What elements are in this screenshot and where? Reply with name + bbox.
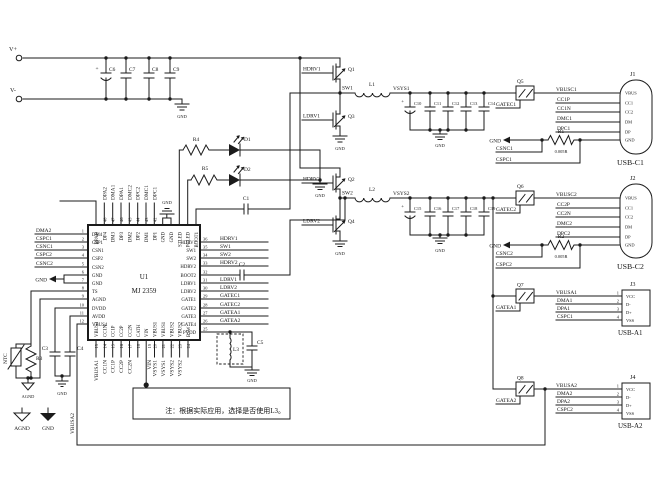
svg-text:GND: GND [625,138,635,143]
svg-text:DPA1: DPA1 [557,306,570,312]
svg-text:C3: C3 [42,346,49,352]
svg-text:DM: DM [625,120,632,125]
svg-text:CSPC2: CSPC2 [496,262,512,268]
svg-text:GATEC2: GATEC2 [220,302,240,308]
mosfet-q7-icon [516,289,534,303]
svg-text:CSPC1: CSPC1 [36,236,52,242]
svg-text:SW1: SW1 [342,86,353,92]
j2-refdes: J2 [630,175,636,182]
svg-text:CSNC2: CSNC2 [496,251,513,257]
svg-text:GATE1: GATE1 [181,298,196,303]
svg-text:C16: C16 [434,206,442,211]
svg-text:HDRV2: HDRV2 [303,177,321,183]
svg-text:27: 27 [203,311,208,316]
svg-text:GATE3: GATE3 [181,315,196,320]
svg-text:DMA2: DMA2 [557,391,573,397]
agnd-triangle-icon [14,413,30,421]
svg-text:VSS: VSS [626,318,635,323]
led-section: R4 D1 R5 D2 GND C1 C2 [193,137,325,268]
vplus-terminal [16,55,22,61]
svg-text:VBUSC1: VBUSC1 [556,87,577,93]
svg-text:3: 3 [617,400,620,405]
svg-text:+: + [401,100,404,105]
svg-text:GATEA2: GATEA2 [496,398,517,404]
gnd-flag-icon [503,137,510,144]
svg-text:GATEC1: GATEC1 [496,102,516,108]
buck1-section: HDRV1 Q1 SW1 L1 VSYS1 LDRV1 Q3 GND + C10… [303,67,496,152]
svg-text:22: 22 [169,344,174,348]
svg-text:AVDD: AVDD [92,315,106,320]
svg-text:LDRV1: LDRV1 [303,114,320,120]
svg-text:32: 32 [203,270,207,275]
svg-text:VBUS2: VBUS2 [179,321,184,337]
svg-text:GND: GND [335,146,345,151]
svg-text:C14: C14 [488,101,496,106]
svg-text:C10: C10 [414,101,422,106]
j3-refdes: J3 [630,281,636,288]
input-section: V+ V- + C6 C7 C8 C9 GND [9,46,187,119]
schematic-page: V+ V- + C6 C7 C8 C9 GND HDRV1 Q1 SW1 L1 … [0,0,655,487]
mosfet-q5-icon [516,86,534,100]
svg-text:D-: D- [626,302,631,307]
svg-text:Q8: Q8 [517,376,524,382]
svg-text:HDRV1: HDRV1 [220,236,238,242]
svg-text:GND: GND [170,231,175,242]
svg-text:DMC1: DMC1 [557,116,572,122]
svg-text:VSYS1: VSYS1 [393,86,410,92]
svg-text:VBUS: VBUS [625,196,637,201]
svg-text:VBUS3: VBUS3 [95,321,100,337]
svg-text:AGND: AGND [14,426,30,432]
svg-text:CC2N: CC2N [128,360,134,374]
svg-text:L2: L2 [369,187,375,193]
svg-text:GATEC1: GATEC1 [220,293,240,299]
svg-text:C5: C5 [257,340,264,346]
svg-text:DM2: DM2 [128,231,133,242]
svg-text:DMA1: DMA1 [111,184,117,200]
svg-text:4: 4 [82,253,85,258]
svg-text:CC2: CC2 [625,110,633,115]
svg-text:CSN1: CSN1 [92,249,104,254]
svg-text:D+: D+ [626,310,632,315]
svg-text:CSPC2: CSPC2 [36,252,52,258]
svg-text:GND: GND [625,243,635,248]
svg-text:+: + [95,66,98,72]
svg-text:C17: C17 [452,206,460,211]
svg-text:9: 9 [82,294,85,299]
svg-text:19: 19 [147,343,152,348]
svg-text:DP2: DP2 [137,231,142,240]
svg-text:Q2: Q2 [348,177,355,183]
svg-text:VSYS2: VSYS2 [393,191,410,197]
svg-text:CSN2: CSN2 [92,266,104,271]
vplus-label: V+ [9,46,17,53]
svg-text:GND: GND [489,139,501,145]
svg-text:+: + [401,205,404,210]
svg-text:R4: R4 [193,137,200,143]
svg-text:DP1: DP1 [153,231,158,240]
svg-text:DPA2: DPA2 [557,399,570,405]
svg-text:GND: GND [92,282,103,287]
svg-text:LDRV2: LDRV2 [220,285,237,291]
svg-text:10: 10 [80,303,85,308]
outfilter-section: L3 C5 GND VBUSA2 [70,340,264,434]
svg-text:R2: R2 [558,234,565,240]
svg-text:CSP2: CSP2 [92,257,104,262]
svg-text:1: 1 [617,384,619,389]
svg-text:D+: D+ [626,403,632,408]
agnd-triangle-icon [22,383,34,390]
svg-text:VSYS2: VSYS2 [169,360,175,377]
svg-text:0.005R: 0.005R [555,254,568,259]
svg-text:CC1: CC1 [625,101,633,106]
svg-text:4: 4 [617,315,620,320]
svg-text:DM3: DM3 [112,231,117,242]
svg-text:Q6: Q6 [517,184,524,190]
svg-text:GND: GND [315,193,325,198]
svg-text:D-: D- [626,395,631,400]
svg-text:GATEC2: GATEC2 [496,207,516,213]
svg-text:31: 31 [203,278,207,283]
svg-text:GND: GND [57,391,67,396]
svg-text:CSNC1: CSNC1 [496,146,513,152]
mosfet-q8-icon [516,382,534,396]
svg-text:CC2: CC2 [625,215,633,220]
svg-text:Q5: Q5 [517,79,524,85]
svg-text:AGND: AGND [22,394,35,399]
svg-text:Q3: Q3 [348,114,355,120]
usb-a2-label: USB-A2 [618,422,643,430]
gnd-triangle-icon [40,413,56,421]
svg-text:GATEA1: GATEA1 [220,310,241,316]
svg-text:C13: C13 [470,101,478,106]
svg-text:CC1: CC1 [625,206,633,211]
svg-text:7: 7 [82,278,85,283]
svg-text:1: 1 [617,291,619,296]
svg-text:VBUSC2: VBUSC2 [556,192,577,198]
svg-text:8: 8 [82,286,85,291]
svg-text:C15: C15 [414,206,422,211]
gnd-flag-icon [49,276,56,283]
svg-text:VCC: VCC [626,294,635,299]
svg-text:CC1P: CC1P [111,360,117,373]
svg-text:Q4: Q4 [348,219,355,225]
svg-text:LDRV2: LDRV2 [303,219,320,225]
svg-text:C12: C12 [452,101,459,106]
svg-text:L1: L1 [369,82,375,88]
led-diode-icon [229,174,240,186]
svg-text:R3: R3 [36,356,43,362]
svg-text:VBUS2: VBUS2 [170,321,175,337]
svg-text:CC1N: CC1N [557,106,571,112]
svg-text:HDRV2: HDRV2 [220,260,238,266]
svg-text:CC2P: CC2P [557,202,570,208]
svg-text:SW2: SW2 [186,257,196,262]
svg-text:25: 25 [203,327,208,332]
svg-text:GND: GND [92,274,103,279]
svg-text:LDRV2: LDRV2 [181,290,197,295]
svg-text:C9: C9 [173,67,180,73]
svg-text:BSW: BSW [187,326,192,337]
j1-refdes: J1 [630,71,636,78]
svg-text:4: 4 [617,408,620,413]
svg-text:GND: GND [177,114,187,119]
svg-text:CC1N: CC1N [103,324,108,337]
svg-text:CC1P: CC1P [112,325,117,337]
svg-text:VBUS1: VBUS1 [154,321,159,337]
svg-text:VBUSA2: VBUSA2 [556,383,577,389]
svg-text:C8: C8 [152,67,159,73]
svg-text:DMC1: DMC1 [144,185,150,200]
svg-text:CC2N: CC2N [557,211,571,217]
svg-text:VIN: VIN [145,328,150,337]
svg-text:DM1: DM1 [145,231,150,242]
vbus4-net-label: VBUSA2 [70,413,76,434]
ic-refdes: U1 [140,273,149,281]
svg-text:CC1N: CC1N [102,360,108,374]
svg-text:0.005R: 0.005R [555,149,568,154]
svg-text:VBUS1: VBUS1 [162,321,167,337]
svg-text:CC2P: CC2P [120,325,125,337]
schematic-canvas: V+ V- + C6 C7 C8 C9 GND HDRV1 Q1 SW1 L1 … [0,0,655,487]
svg-text:L3: L3 [233,347,239,353]
svg-text:GND: GND [489,244,501,250]
svg-text:C4: C4 [77,346,84,352]
svg-text:12: 12 [80,319,84,324]
svg-text:36: 36 [203,237,208,242]
svg-text:GND: GND [162,200,172,205]
svg-text:SW2: SW2 [220,252,231,258]
svg-text:GND: GND [335,251,345,256]
usb-c2-label: USB-C2 [617,262,644,271]
svg-text:DMC2: DMC2 [127,185,133,200]
svg-text:SW2: SW2 [342,191,353,197]
svg-text:HDRV1: HDRV1 [180,241,196,246]
svg-text:11: 11 [80,311,84,316]
svg-text:BOOT2: BOOT2 [181,274,197,279]
svg-text:CSNC1: CSNC1 [36,244,53,250]
svg-text:HDRV2: HDRV2 [180,265,196,270]
svg-text:DM: DM [625,225,632,230]
svg-text:SW1: SW1 [220,244,231,250]
svg-text:CSPC1: CSPC1 [496,157,512,163]
mosfet-q6-icon [516,191,534,205]
svg-text:3: 3 [617,307,620,312]
svg-text:33: 33 [203,261,208,266]
svg-text:C18: C18 [470,206,478,211]
svg-text:DPA1: DPA1 [119,187,125,200]
svg-text:DP: DP [625,235,631,240]
svg-text:NTC: NTC [3,353,9,364]
ic-partnumber: MJ 2359 [132,287,157,295]
svg-text:BPAD: BPAD [95,231,100,244]
svg-text:3: 3 [82,245,85,250]
svg-text:AGND: AGND [92,298,106,303]
led-diode-icon [229,144,240,156]
svg-text:C1: C1 [243,196,250,202]
svg-text:VSS: VSS [626,411,635,416]
svg-text:HDRV1: HDRV1 [303,67,321,73]
usb-c1-label: USB-C1 [617,158,644,167]
usb-c1-section: Q5 GATEC1 VBUSC1 CC1P CC1N DMC1 DPC1 GND… [489,71,644,167]
svg-text:CSPC1: CSPC1 [557,314,573,320]
svg-text:DP4: DP4 [103,231,108,240]
svg-text:GND: GND [35,278,47,284]
svg-text:VBUS: VBUS [625,91,637,96]
svg-text:GATEA2: GATEA2 [220,318,241,324]
svg-text:LDRV1: LDRV1 [181,282,197,287]
svg-text:42: 42 [152,218,157,222]
svg-text:21: 21 [161,344,166,348]
svg-text:Q1: Q1 [348,67,355,73]
svg-text:GATE2: GATE2 [181,307,196,312]
svg-text:DMA1: DMA1 [557,298,573,304]
svg-text:CSNC2: CSNC2 [36,261,53,267]
svg-text:34: 34 [203,253,208,258]
svg-text:2: 2 [617,392,619,397]
svg-text:GND: GND [435,143,445,148]
svg-text:VSYS1: VSYS1 [153,360,159,377]
vminus-terminal [16,96,22,102]
svg-text:C11: C11 [434,101,441,106]
svg-text:DMA2: DMA2 [36,228,52,234]
svg-text:GATEA1: GATEA1 [496,305,517,311]
svg-text:C6: C6 [109,67,116,73]
svg-text:GND: GND [247,378,257,383]
usb-a1-label: USB-A1 [618,329,643,337]
svg-text:1: 1 [82,229,84,234]
svg-text:VSYS1: VSYS1 [161,360,167,377]
svg-text:26: 26 [203,319,208,324]
svg-text:D1: D1 [244,137,251,143]
svg-text:35: 35 [203,245,208,250]
vminus-label: V- [10,87,16,94]
svg-text:5: 5 [82,262,85,267]
svg-text:DP3: DP3 [120,231,125,240]
svg-text:VCC: VCC [626,387,635,392]
svg-text:DPC2: DPC2 [136,187,142,200]
svg-text:SW1: SW1 [186,249,196,254]
svg-text:VBUSA1: VBUSA1 [556,290,577,296]
svg-text:R5: R5 [202,166,209,172]
svg-text:D2: D2 [244,167,251,173]
svg-text:TS: TS [92,290,98,295]
svg-text:6: 6 [82,270,85,275]
usb-c2-section: Q6 GATEC2 VBUSC2 CC2P CC2N DMC2 DPC2 GND… [489,175,644,271]
svg-text:CC1P: CC1P [557,97,570,103]
svg-text:CSPC2: CSPC2 [557,407,573,413]
svg-text:30: 30 [203,286,208,291]
svg-text:CC2N: CC2N [129,324,134,337]
svg-text:2: 2 [617,299,619,304]
svg-text:Q7: Q7 [517,283,524,289]
gnd-flag-icon [503,242,510,249]
svg-text:LDRV1: LDRV1 [220,277,237,283]
svg-text:R1: R1 [558,129,565,135]
svg-text:29: 29 [203,294,208,299]
svg-text:C2: C2 [239,262,246,268]
svg-text:GND: GND [435,248,445,253]
svg-text:C19: C19 [488,206,496,211]
svg-text:GND: GND [162,231,167,242]
svg-text:2: 2 [82,237,84,242]
svg-text:DVDD: DVDD [92,307,106,312]
svg-text:DMC2: DMC2 [557,221,572,227]
svg-text:C7: C7 [129,67,136,73]
note-text: 注：根据实际应用，选择是否使用L3。 [165,406,285,415]
svg-text:28: 28 [203,303,208,308]
svg-text:DP: DP [625,130,631,135]
svg-text:GND: GND [42,426,54,432]
svg-text:CATH: CATH [137,324,142,337]
svg-text:DPA2: DPA2 [102,187,108,200]
svg-text:CC2P: CC2P [119,360,125,373]
j4-refdes: J4 [630,374,636,381]
svg-text:VSYS2: VSYS2 [178,360,184,377]
svg-text:VBUSA1: VBUSA1 [94,360,100,381]
svg-text:DPC1: DPC1 [152,187,158,200]
